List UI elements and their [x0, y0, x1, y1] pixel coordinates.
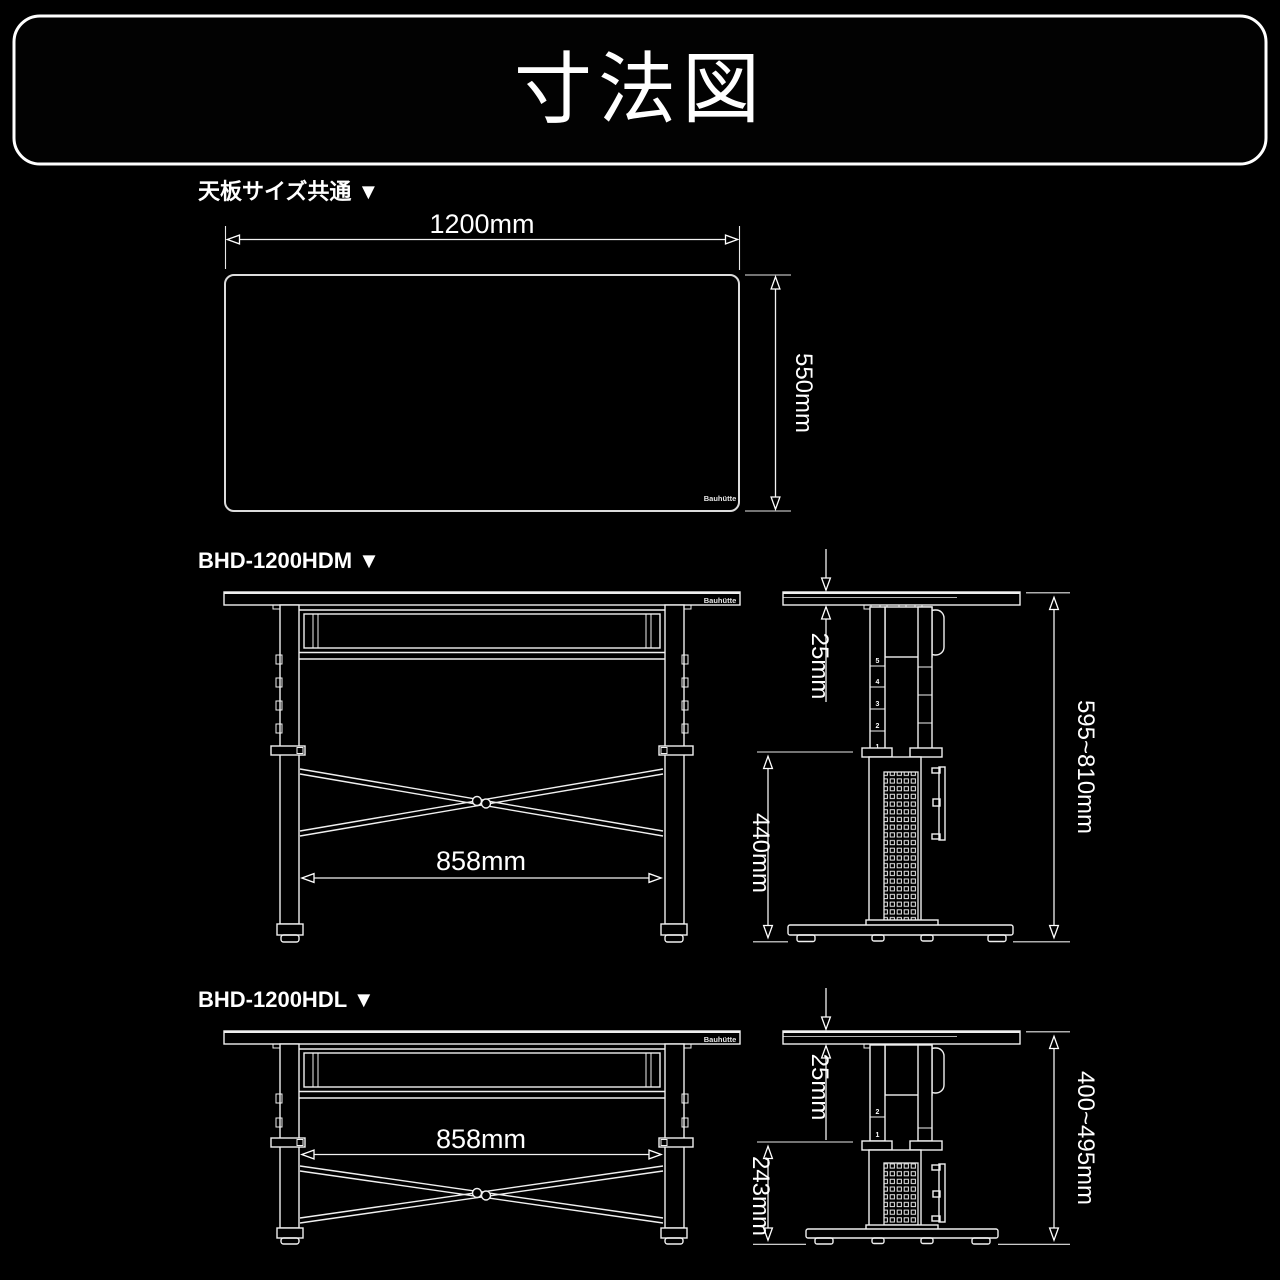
rail-number: 3 — [876, 701, 880, 708]
dim-label-height-range: 595~810mm — [1072, 700, 1099, 834]
hdl-dimension-top-thickness: 25mm — [806, 988, 833, 1140]
hdm-side-clamps — [862, 748, 942, 757]
brace-bolt — [473, 797, 482, 806]
dim-label-inner-width: 858mm — [436, 846, 526, 876]
hdl-front-rail: 2 1 — [870, 1045, 885, 1141]
hdm-rear-rail — [918, 607, 932, 754]
title-panel: 寸法図 — [14, 16, 1266, 164]
hdl-side-view: 2 1 — [747, 988, 1099, 1244]
hdm-section: BHD-1200HDM ▼ Bauhütte — [198, 548, 1099, 942]
brand-logo: Bauhütte — [704, 494, 737, 503]
dimension-diagram: 寸法図 天板サイズ共通 ▼ Bauhütte 1200mm 550mm BHD-… — [0, 0, 1280, 1280]
hdm-dimension-height-range: 595~810mm — [1026, 593, 1099, 938]
hdl-right-leg — [665, 1044, 684, 1228]
dim-label-under-clearance: 440mm — [747, 813, 774, 893]
hdl-left-leg — [280, 1044, 299, 1228]
hdl-side-handle — [932, 1164, 945, 1222]
hdm-front-rail: 5 4 3 2 1 — [870, 607, 885, 754]
top-view-section: 天板サイズ共通 ▼ Bauhütte 1200mm 550mm — [198, 179, 817, 511]
dim-label-width: 1200mm — [429, 209, 534, 239]
brace-bolt — [482, 799, 491, 808]
hdm-mesh-panel — [884, 772, 918, 921]
hdl-rear-rail — [918, 1045, 932, 1141]
section-label-common: 天板サイズ共通 ▼ — [198, 179, 379, 204]
rail-number: 2 — [876, 1109, 880, 1116]
brace-bolt — [473, 1189, 482, 1198]
dim-label-under-clearance: 243mm — [747, 1156, 774, 1236]
rail-number: 1 — [876, 1132, 880, 1139]
brand-logo: Bauhütte — [704, 1035, 737, 1044]
hdm-base-pads — [797, 935, 1006, 942]
rail-number: 2 — [876, 723, 880, 730]
hdl-feet — [277, 1228, 687, 1244]
hdm-dimension-top-thickness: 25mm — [806, 549, 833, 702]
hdl-front-view: Bauhütte — [224, 1031, 740, 1244]
hdm-cross-brace — [300, 769, 663, 836]
hdl-dimension-inner-width: 858mm — [302, 1124, 661, 1155]
hdm-side-view: 5 4 3 2 1 — [747, 549, 1099, 942]
hdm-leg-clamps — [271, 746, 693, 755]
brace-bolt — [482, 1191, 491, 1200]
hdl-side-clamps — [862, 1141, 942, 1150]
dim-label-top-thickness: 25mm — [806, 1054, 833, 1121]
rail-number: 4 — [876, 679, 880, 686]
hdl-mesh-panel — [884, 1163, 918, 1225]
hdm-feet — [277, 924, 687, 942]
rail-number: 5 — [876, 658, 880, 665]
hdm-side-handle — [932, 767, 945, 840]
brand-logo: Bauhütte — [704, 596, 737, 605]
hdl-base-pads — [815, 1238, 990, 1244]
hdm-front-view: Bauhütte — [224, 592, 740, 942]
hdl-dimension-under-clearance: 243mm — [747, 1142, 853, 1240]
dimension-depth-550: 550mm — [745, 275, 817, 511]
hdl-leg-adjust-marks — [276, 1094, 688, 1127]
tabletop-outline — [225, 275, 739, 511]
section-label-hdl: BHD-1200HDL ▼ — [198, 987, 375, 1012]
hdm-left-leg — [280, 605, 299, 924]
hdm-back-shelf — [299, 610, 665, 659]
hdl-section: BHD-1200HDL ▼ Bauhütte — [198, 987, 1099, 1244]
dim-label-inner-width: 858mm — [436, 1124, 526, 1154]
hdm-leg-adjust-marks — [276, 655, 688, 733]
dim-label-height-range: 400~495mm — [1072, 1071, 1099, 1205]
hdl-dimension-height-range: 400~495mm — [1026, 1032, 1099, 1240]
hdl-cross-brace — [300, 1166, 663, 1223]
hdm-base — [788, 925, 1013, 935]
section-label-hdm: BHD-1200HDM ▼ — [198, 548, 380, 573]
page-title: 寸法図 — [514, 45, 766, 133]
hdm-right-leg — [665, 605, 684, 924]
hdl-back-shelf — [299, 1049, 665, 1098]
dimension-width-1200: 1200mm — [226, 209, 740, 270]
hdm-dimension-under-clearance: 440mm — [747, 752, 853, 938]
dim-label-depth: 550mm — [790, 353, 817, 433]
dim-label-top-thickness: 25mm — [806, 633, 833, 700]
hdl-base — [806, 1229, 998, 1238]
hdm-dimension-inner-width: 858mm — [302, 846, 661, 878]
